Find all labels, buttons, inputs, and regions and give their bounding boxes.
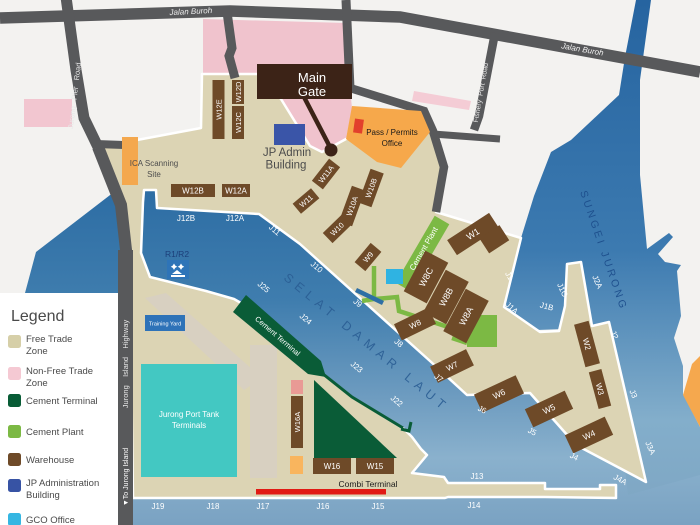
svg-text:W12E: W12E — [215, 99, 224, 119]
svg-text:Non-Free Trade: Non-Free Trade — [26, 366, 93, 377]
svg-text:J16: J16 — [317, 502, 330, 511]
svg-text:Building: Building — [266, 160, 307, 172]
svg-text:Pass / Permits: Pass / Permits — [366, 128, 418, 137]
svg-text:W12B: W12B — [182, 187, 204, 196]
svg-text:Terminals: Terminals — [172, 421, 206, 430]
svg-text:J19: J19 — [152, 502, 165, 511]
svg-text:W12C: W12C — [234, 112, 243, 133]
svg-text:Zone: Zone — [26, 378, 48, 389]
svg-text:Free Trade: Free Trade — [26, 334, 72, 345]
svg-text:W15: W15 — [367, 462, 384, 471]
svg-text:W12A: W12A — [225, 187, 247, 196]
svg-text:Cement Plant: Cement Plant — [26, 427, 84, 438]
svg-text:W12D: W12D — [234, 81, 243, 102]
svg-text:Jurong Port Tank: Jurong Port Tank — [159, 410, 220, 419]
svg-text:Site: Site — [147, 170, 161, 179]
svg-text:Warehouse: Warehouse — [26, 455, 74, 466]
svg-text:Training Yard: Training Yard — [149, 322, 181, 328]
svg-text:J18: J18 — [207, 502, 220, 511]
svg-text:J12A: J12A — [226, 214, 245, 223]
svg-text:J12B: J12B — [177, 214, 195, 223]
svg-text:ICA Scanning: ICA Scanning — [130, 159, 178, 168]
svg-text:J14: J14 — [468, 501, 481, 510]
svg-text:GCO Office: GCO Office — [26, 515, 75, 525]
svg-text:Zone: Zone — [26, 346, 48, 357]
svg-text:Gate: Gate — [298, 84, 326, 99]
svg-text:Combi Terminal: Combi Terminal — [339, 479, 398, 489]
svg-text:R1/R2: R1/R2 — [165, 249, 189, 259]
svg-text:J13: J13 — [471, 472, 484, 481]
svg-text:Office: Office — [382, 139, 403, 148]
svg-text:Main: Main — [298, 70, 326, 85]
svg-text:J17: J17 — [257, 502, 270, 511]
svg-text:Building: Building — [26, 490, 60, 501]
svg-text:▼To Jurong Island: ▼To Jurong Island — [123, 448, 130, 506]
svg-text:Cement Terminal: Cement Terminal — [26, 396, 98, 407]
svg-text:Jurong Island Highway: Jurong Island Highway — [121, 320, 130, 409]
svg-text:JP Administration: JP Administration — [26, 478, 99, 489]
svg-text:W16: W16 — [324, 462, 341, 471]
svg-text:JP Admin: JP Admin — [263, 147, 311, 159]
svg-text:W16A: W16A — [293, 412, 302, 432]
svg-text:J15: J15 — [372, 502, 385, 511]
svg-text:Legend: Legend — [11, 308, 64, 325]
